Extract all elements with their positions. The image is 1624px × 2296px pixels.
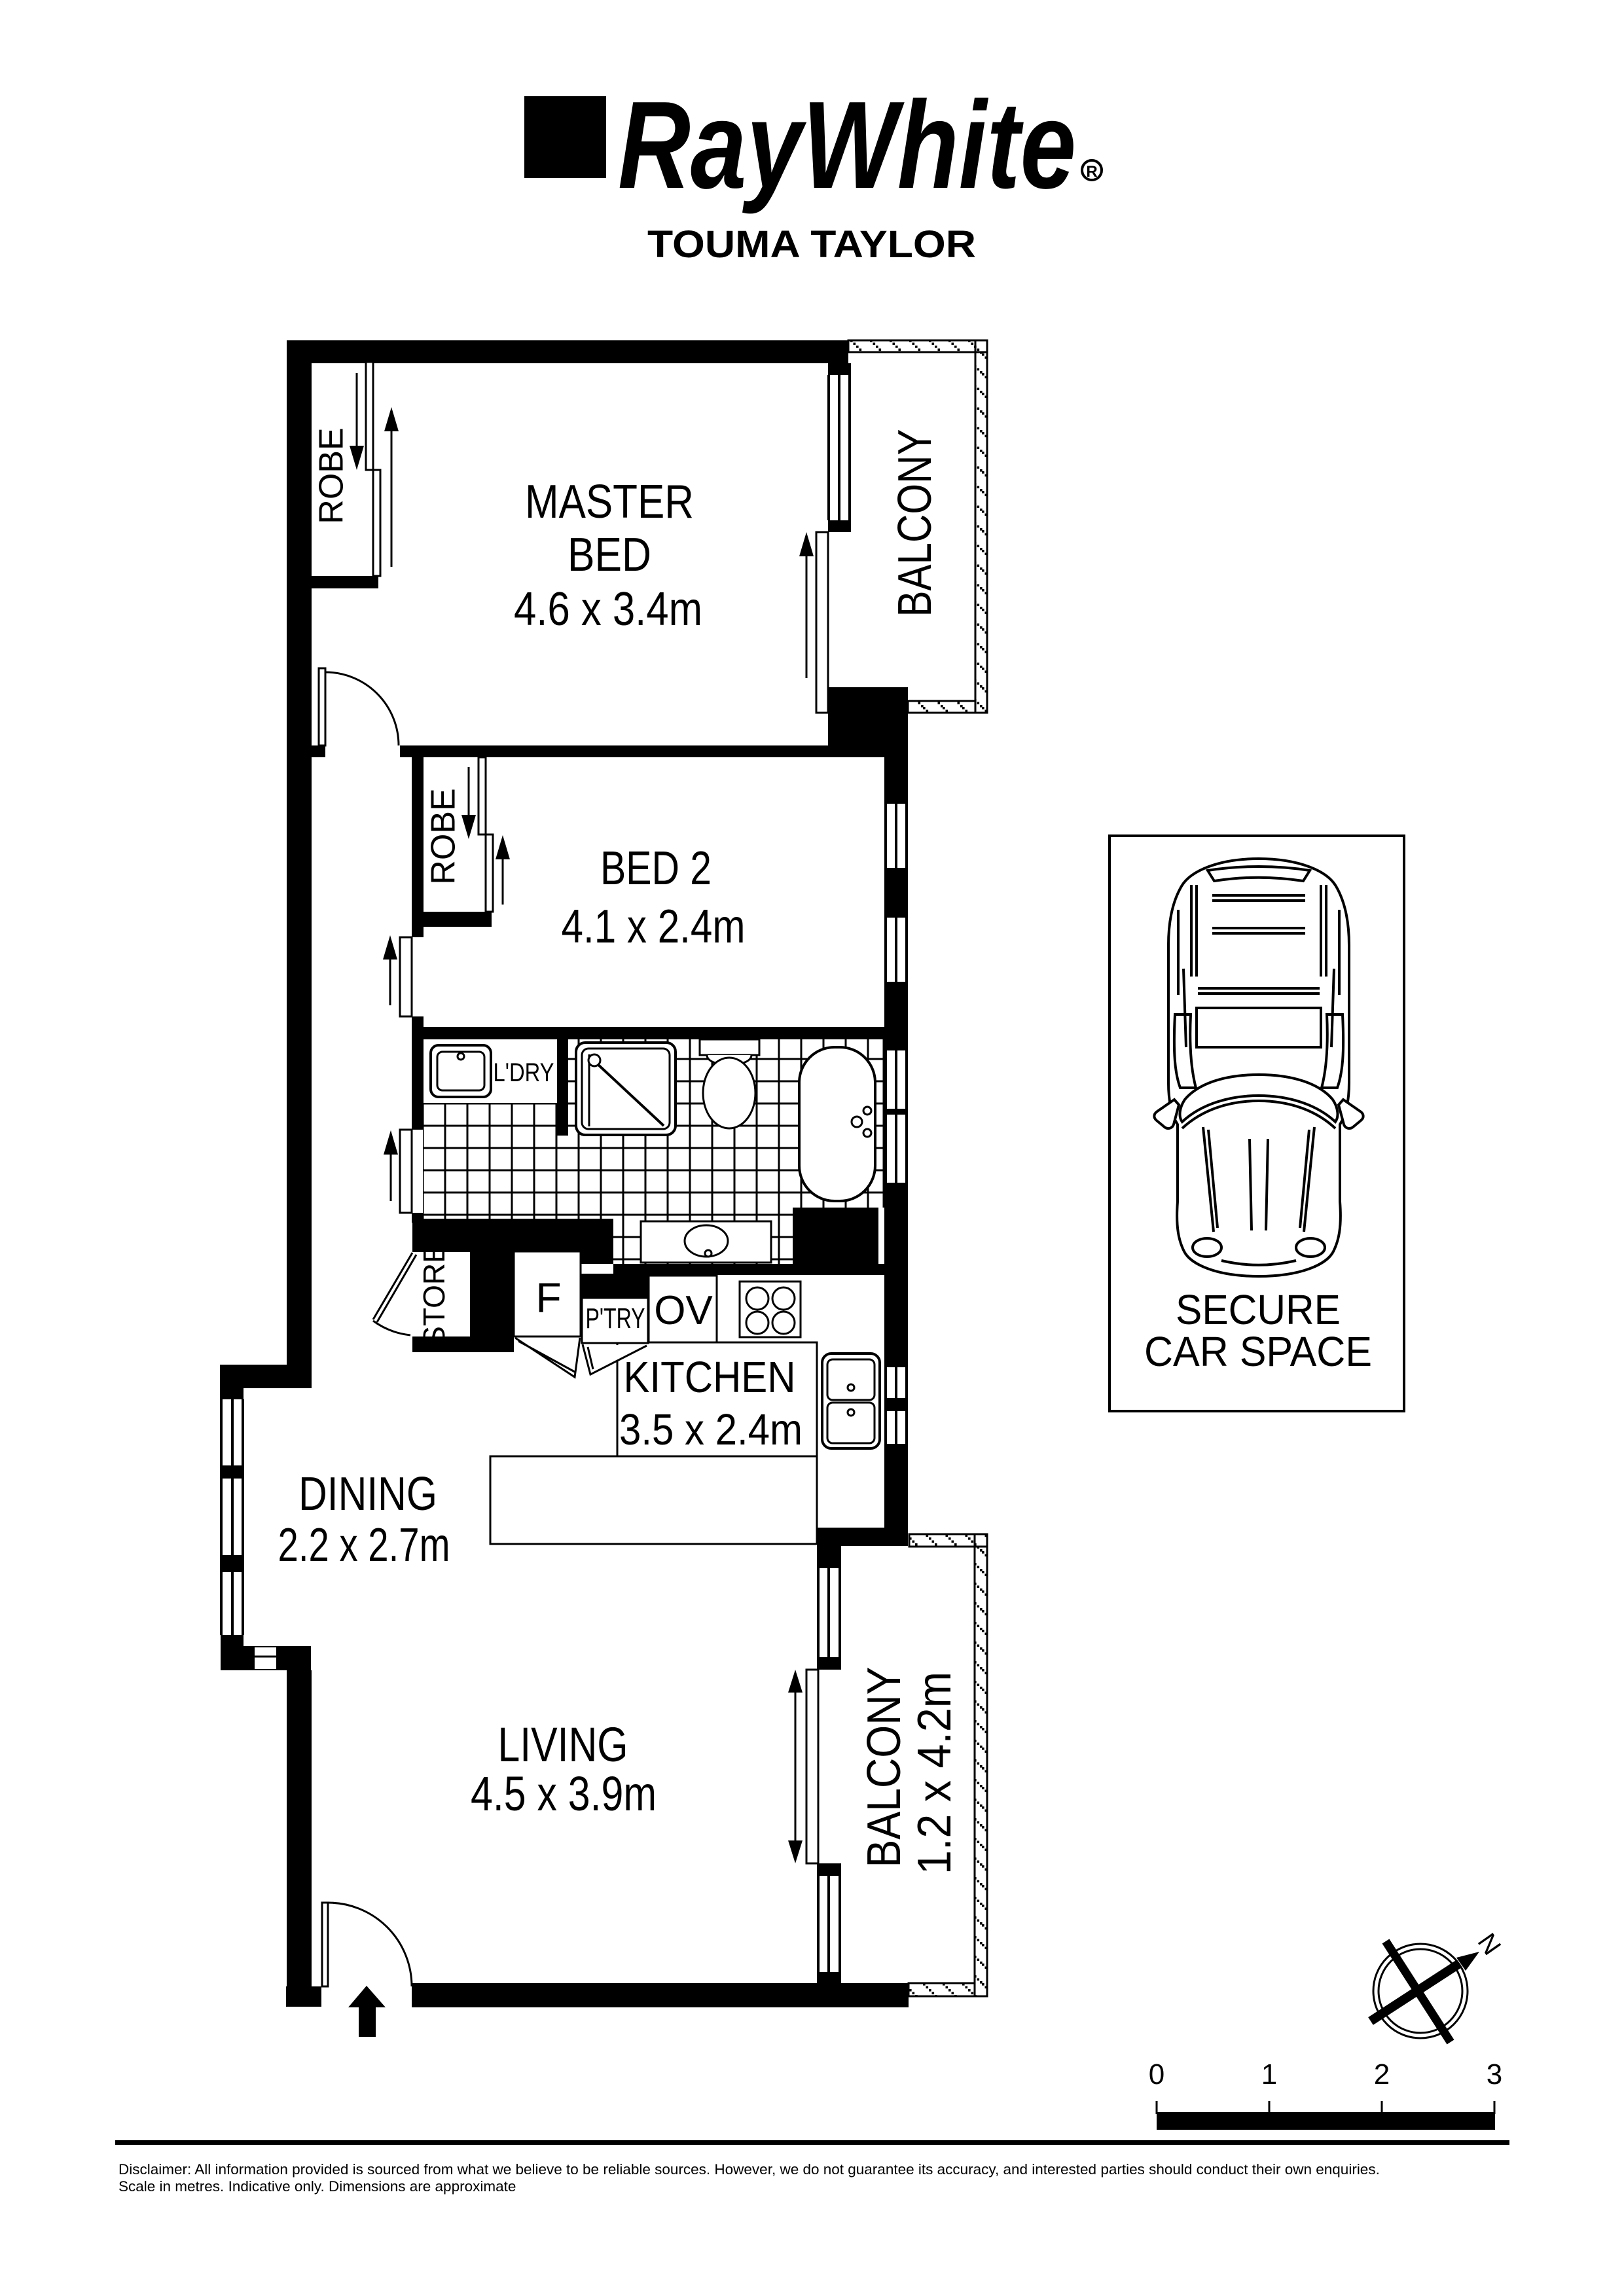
svg-text:4.1 x 2.4m: 4.1 x 2.4m (562, 901, 746, 953)
svg-text:1.2 x 4.2m: 1.2 x 4.2m (909, 1672, 961, 1874)
svg-text:BALCONY: BALCONY (889, 429, 941, 617)
svg-text:BED 2: BED 2 (600, 842, 712, 895)
svg-text:2.2 x 2.7m: 2.2 x 2.7m (278, 1519, 450, 1571)
svg-text:Scale in metres. Indicative on: Scale in metres. Indicative only. Dimens… (118, 2178, 516, 2195)
svg-text:CAR SPACE: CAR SPACE (1144, 1328, 1372, 1375)
svg-text:3.5 x 2.4m: 3.5 x 2.4m (619, 1405, 803, 1454)
svg-text:1: 1 (1261, 2058, 1277, 2090)
svg-text:4.6 x 3.4m: 4.6 x 3.4m (514, 583, 702, 636)
svg-text:KITCHEN: KITCHEN (624, 1353, 796, 1402)
svg-text:4.5 x 3.9m: 4.5 x 3.9m (471, 1767, 657, 1821)
svg-text:MASTER: MASTER (525, 476, 694, 528)
svg-text:P'TRY: P'TRY (586, 1302, 645, 1335)
svg-text:BALCONY: BALCONY (858, 1667, 911, 1868)
svg-text:2: 2 (1374, 2058, 1390, 2090)
svg-text:0: 0 (1149, 2058, 1164, 2090)
svg-text:BED: BED (568, 529, 651, 581)
svg-text:LIVING: LIVING (498, 1717, 628, 1772)
svg-text:STORE: STORE (417, 1243, 451, 1346)
svg-text:TOUMA TAYLOR: TOUMA TAYLOR (647, 223, 976, 266)
svg-text:3: 3 (1487, 2058, 1502, 2090)
svg-text:L'DRY: L'DRY (494, 1058, 554, 1087)
svg-text:N: N (1472, 1928, 1507, 1960)
svg-text:RayWhite: RayWhite (618, 76, 1076, 215)
svg-text:SECURE: SECURE (1176, 1286, 1341, 1333)
svg-text:ROBE: ROBE (425, 788, 463, 884)
svg-text:Disclaimer: All information pr: Disclaimer: All information provided is … (118, 2161, 1380, 2178)
svg-text:DINING: DINING (298, 1468, 437, 1520)
svg-text:R: R (1086, 163, 1097, 181)
svg-text:F: F (535, 1274, 561, 1321)
svg-text:ROBE: ROBE (313, 427, 351, 524)
svg-text:OV: OV (654, 1288, 713, 1333)
